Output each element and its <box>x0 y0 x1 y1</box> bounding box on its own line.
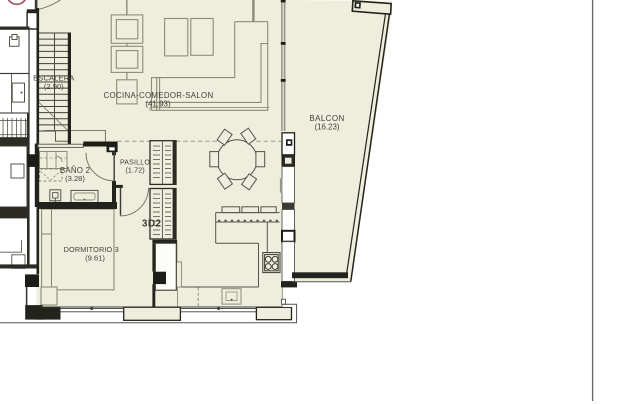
svg-text:(9.61): (9.61) <box>85 254 105 263</box>
svg-text:3D2: 3D2 <box>142 219 162 230</box>
svg-text:(3.28): (3.28) <box>65 174 85 183</box>
svg-text:(1.72): (1.72) <box>125 166 144 175</box>
svg-text:(16.23): (16.23) <box>314 123 339 132</box>
svg-text:(2.90): (2.90) <box>44 82 64 91</box>
svg-text:(41.93): (41.93) <box>145 100 171 109</box>
